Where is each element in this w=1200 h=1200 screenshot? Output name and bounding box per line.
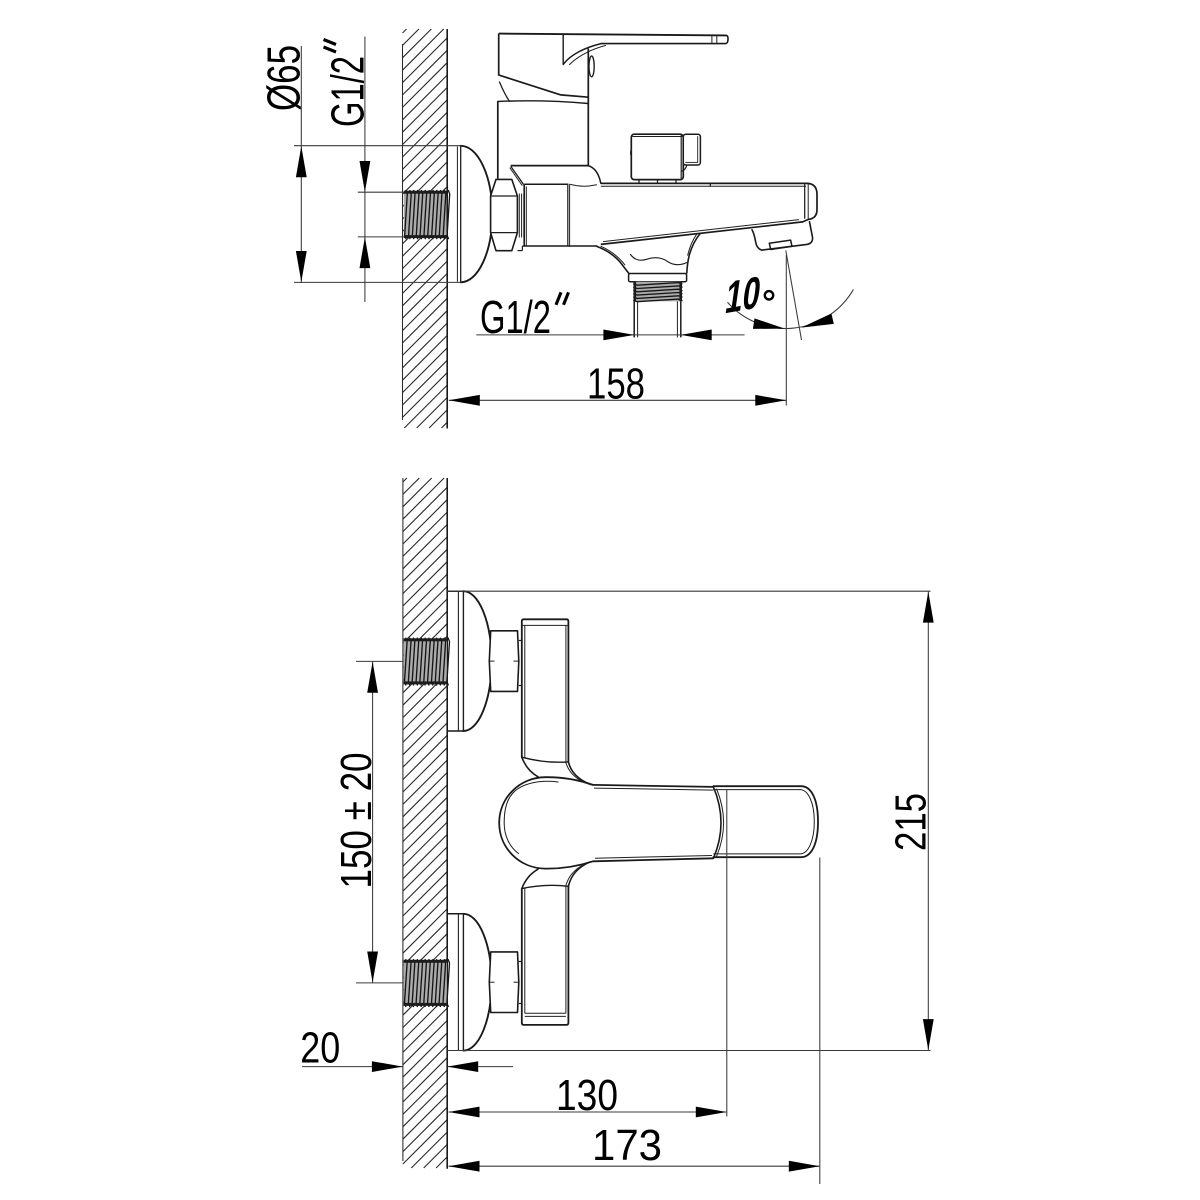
- svg-text:150 ± 20: 150 ± 20: [332, 753, 381, 889]
- svg-text:20: 20: [300, 1023, 340, 1072]
- svg-text:Ø65: Ø65: [258, 45, 310, 111]
- svg-text:G1/2: G1/2: [322, 56, 374, 127]
- svg-text:G1/2: G1/2: [480, 291, 551, 343]
- svg-text:158: 158: [587, 359, 645, 408]
- svg-text:130: 130: [556, 1071, 618, 1120]
- svg-text:173: 173: [592, 1121, 662, 1170]
- svg-text:215: 215: [887, 793, 936, 851]
